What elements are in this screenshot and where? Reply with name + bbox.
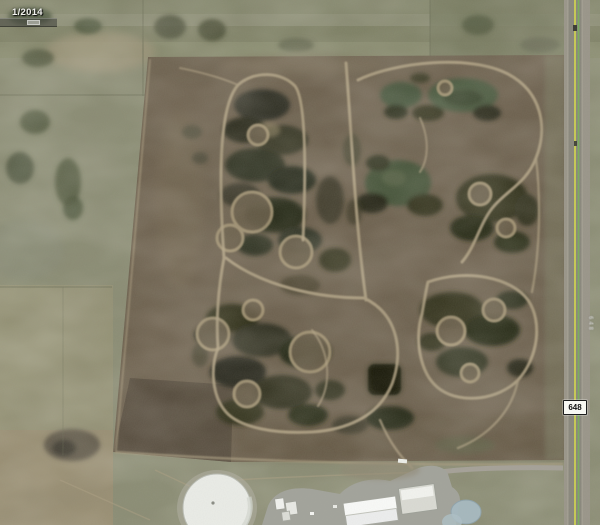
satellite-imagery (0, 0, 600, 525)
time-slider-handle[interactable] (27, 20, 40, 25)
map-viewport[interactable]: 1/2014 648 648 (0, 0, 600, 525)
highway-shield: 648 (563, 400, 587, 415)
historical-time-slider[interactable] (0, 18, 57, 27)
road-name-label: 648 (584, 316, 593, 344)
image-grain (0, 0, 600, 525)
imagery-date-label: 1/2014 (12, 7, 43, 18)
